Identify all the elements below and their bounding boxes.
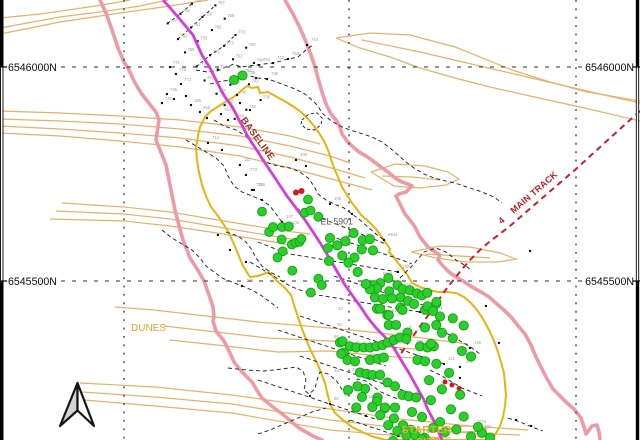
- svg-text:6546000N: 6546000N: [8, 62, 57, 74]
- svg-text:6545500N: 6545500N: [585, 276, 634, 288]
- svg-text:EL 5901: EL 5901: [321, 217, 354, 227]
- svg-text:24: 24: [334, 368, 339, 373]
- svg-text:743: 743: [251, 79, 259, 84]
- svg-text:141: 141: [448, 356, 456, 361]
- svg-text:775: 775: [213, 50, 221, 55]
- svg-text:787: 787: [218, 0, 226, 5]
- svg-text:106: 106: [258, 182, 266, 187]
- svg-text:156: 156: [194, 98, 202, 103]
- svg-text:764: 764: [220, 64, 228, 69]
- svg-text:797: 797: [170, 18, 178, 23]
- svg-text:105: 105: [334, 196, 342, 201]
- svg-text:DUNES: DUNES: [131, 323, 166, 334]
- svg-text:762: 762: [236, 54, 244, 59]
- svg-text:744: 744: [311, 37, 319, 42]
- svg-text:792: 792: [180, 34, 188, 39]
- svg-text:111: 111: [244, 157, 251, 162]
- svg-text:146: 146: [474, 340, 482, 345]
- svg-text:739: 739: [248, 70, 256, 75]
- svg-text:140: 140: [402, 264, 410, 269]
- svg-text:776: 776: [179, 67, 187, 72]
- svg-text:714: 714: [212, 135, 220, 140]
- svg-text:58: 58: [334, 396, 339, 401]
- svg-text:42: 42: [338, 306, 343, 311]
- svg-text:780: 780: [227, 13, 235, 18]
- svg-text:782: 782: [214, 25, 222, 30]
- svg-text:104: 104: [300, 152, 308, 157]
- svg-text:786: 786: [188, 47, 196, 52]
- svg-text:770: 770: [238, 29, 246, 34]
- svg-text:158: 158: [203, 105, 211, 110]
- svg-text:773: 773: [227, 40, 235, 45]
- svg-text:742: 742: [277, 55, 285, 60]
- svg-text:796: 796: [183, 8, 191, 13]
- svg-text:754: 754: [224, 107, 232, 112]
- svg-text:773: 773: [250, 167, 258, 172]
- svg-text:738: 738: [271, 71, 279, 76]
- svg-text:735: 735: [263, 95, 271, 100]
- svg-text:760: 760: [249, 42, 257, 47]
- svg-text:104: 104: [484, 424, 492, 429]
- svg-text:745: 745: [170, 87, 178, 92]
- svg-text:26: 26: [337, 322, 342, 327]
- svg-text:SITE: SITE: [416, 436, 440, 440]
- svg-text:0644: 0644: [388, 232, 398, 237]
- svg-text:746: 746: [240, 90, 248, 95]
- svg-text:773: 773: [184, 77, 192, 82]
- svg-text:6546000N: 6546000N: [585, 62, 634, 74]
- svg-text:783: 783: [200, 36, 208, 41]
- svg-text:STARTER: STARTER: [402, 424, 452, 436]
- svg-text:753: 753: [292, 51, 300, 56]
- svg-text:795: 795: [194, 0, 202, 3]
- svg-text:789: 789: [205, 11, 213, 16]
- svg-text:741: 741: [165, 96, 173, 101]
- svg-text:771: 771: [173, 60, 181, 65]
- svg-text:6545500N: 6545500N: [8, 276, 57, 288]
- svg-text:791: 791: [194, 22, 202, 27]
- svg-text:743: 743: [263, 57, 271, 62]
- svg-text:109: 109: [246, 278, 254, 283]
- svg-text:738: 738: [249, 104, 257, 109]
- svg-text:107: 107: [286, 214, 294, 219]
